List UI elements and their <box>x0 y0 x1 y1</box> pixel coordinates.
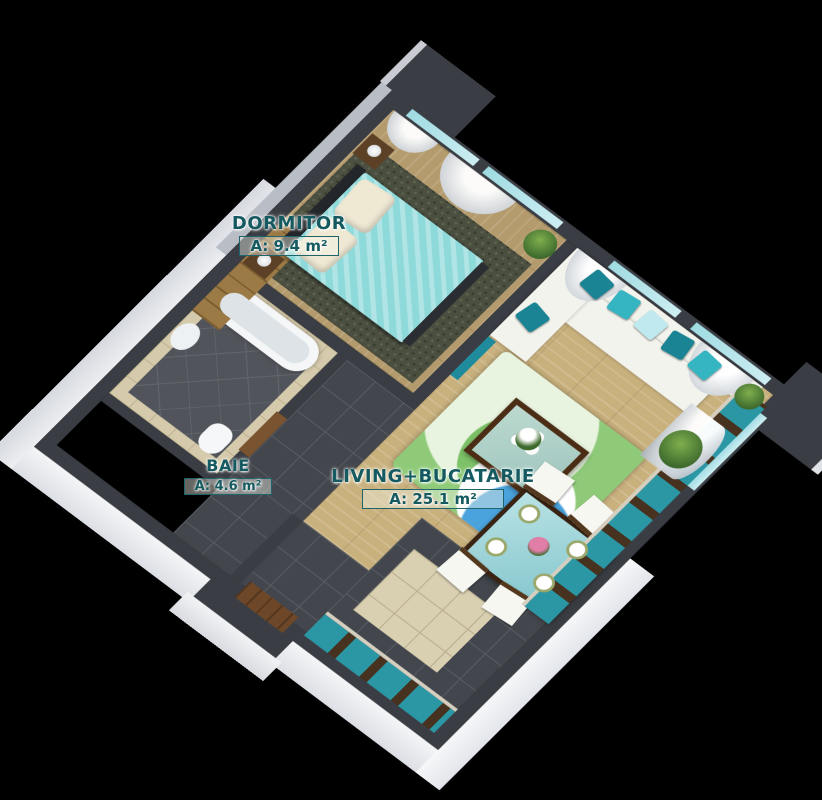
label-baie-area: A: 4.6 m² <box>184 478 273 495</box>
label-baie-title: BAIE <box>148 456 308 475</box>
label-living-title: LIVING+BUCATARIE <box>303 466 563 487</box>
label-living-area: A: 25.1 m² <box>362 489 504 509</box>
label-dormitor-area: A: 9.4 m² <box>239 236 338 256</box>
label-baie: BAIE A: 4.6 m² <box>148 456 308 495</box>
apartment-plan <box>34 90 796 750</box>
label-dormitor-title: DORMITOR <box>199 213 379 234</box>
label-living: LIVING+BUCATARIE A: 25.1 m² <box>303 466 563 509</box>
label-dormitor: DORMITOR A: 9.4 m² <box>199 213 379 256</box>
render-stage: DORMITOR A: 9.4 m² BAIE A: 4.6 m² LIVING… <box>0 0 822 800</box>
